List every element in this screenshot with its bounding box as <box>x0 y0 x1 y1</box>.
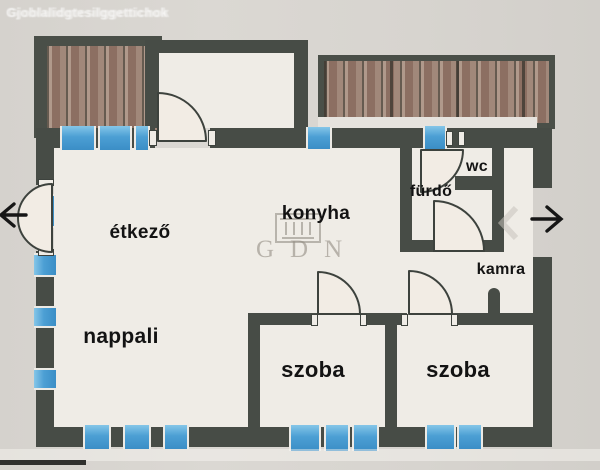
wall-segment <box>455 176 504 190</box>
door-jamb <box>311 314 318 326</box>
terrace-deck-left <box>34 36 162 138</box>
wall-segment <box>385 313 397 427</box>
door-jamb <box>401 314 408 326</box>
wall-segment <box>492 148 504 252</box>
door-jamb <box>470 241 477 252</box>
arrow-right-icon <box>532 207 561 231</box>
watermark-text: GDN <box>256 236 358 264</box>
window-marker <box>306 127 332 149</box>
wall-segment <box>533 135 552 188</box>
window-marker <box>423 126 447 149</box>
wall-segment <box>210 128 552 148</box>
window-marker <box>289 425 321 451</box>
window-marker <box>98 126 132 150</box>
door-jamb <box>433 241 440 252</box>
porch-room <box>159 53 294 128</box>
door-jamb <box>38 179 54 186</box>
door-jamb <box>208 130 216 146</box>
window-marker <box>34 368 56 390</box>
paper-edge-line <box>0 460 86 465</box>
wall-segment <box>248 313 260 447</box>
window-marker <box>134 126 150 150</box>
window-marker <box>352 425 379 451</box>
floorplan-canvas: esnpausze in egyeslit KÖFDSZNI 84 m2 se … <box>0 0 600 470</box>
door-jamb <box>360 314 367 326</box>
door-glass-marker <box>43 194 54 228</box>
wall-segment <box>145 40 308 53</box>
wall-segment <box>36 251 54 447</box>
wall-segment <box>477 240 504 252</box>
room-label-furdo: fürdő <box>410 183 452 201</box>
window-marker <box>34 306 56 328</box>
room-label-wc: wc <box>466 158 488 176</box>
corner-watermark-text: Gjoblalidgtesilggettichok <box>6 6 168 20</box>
room-label-kamra: kamra <box>477 261 526 279</box>
window-marker <box>60 126 96 150</box>
window-marker <box>123 425 151 449</box>
wall-segment <box>400 240 433 252</box>
door-jamb <box>446 131 453 146</box>
arrow-left-icon <box>1 204 26 226</box>
room-label-nappali: nappali <box>83 325 159 349</box>
room-label-szoba-right: szoba <box>426 357 490 383</box>
paper-band <box>0 449 600 461</box>
door-jamb <box>149 130 157 146</box>
wall-segment <box>533 257 552 447</box>
wall-segment <box>145 40 159 128</box>
window-marker <box>163 425 189 449</box>
door-jamb <box>458 131 465 146</box>
room-label-etkezo: étkező <box>110 222 171 244</box>
door-jamb <box>38 249 54 256</box>
window-marker <box>83 425 111 449</box>
window-marker <box>457 425 483 449</box>
wall-segment <box>452 313 537 325</box>
window-marker <box>34 253 56 277</box>
room-label-szoba-left: szoba <box>281 357 345 383</box>
door-jamb <box>451 314 458 326</box>
room-label-konyha: konyha <box>282 203 350 225</box>
wall-segment <box>36 128 54 185</box>
wall-segment <box>294 40 308 128</box>
window-marker <box>425 425 456 449</box>
window-marker <box>324 425 350 451</box>
